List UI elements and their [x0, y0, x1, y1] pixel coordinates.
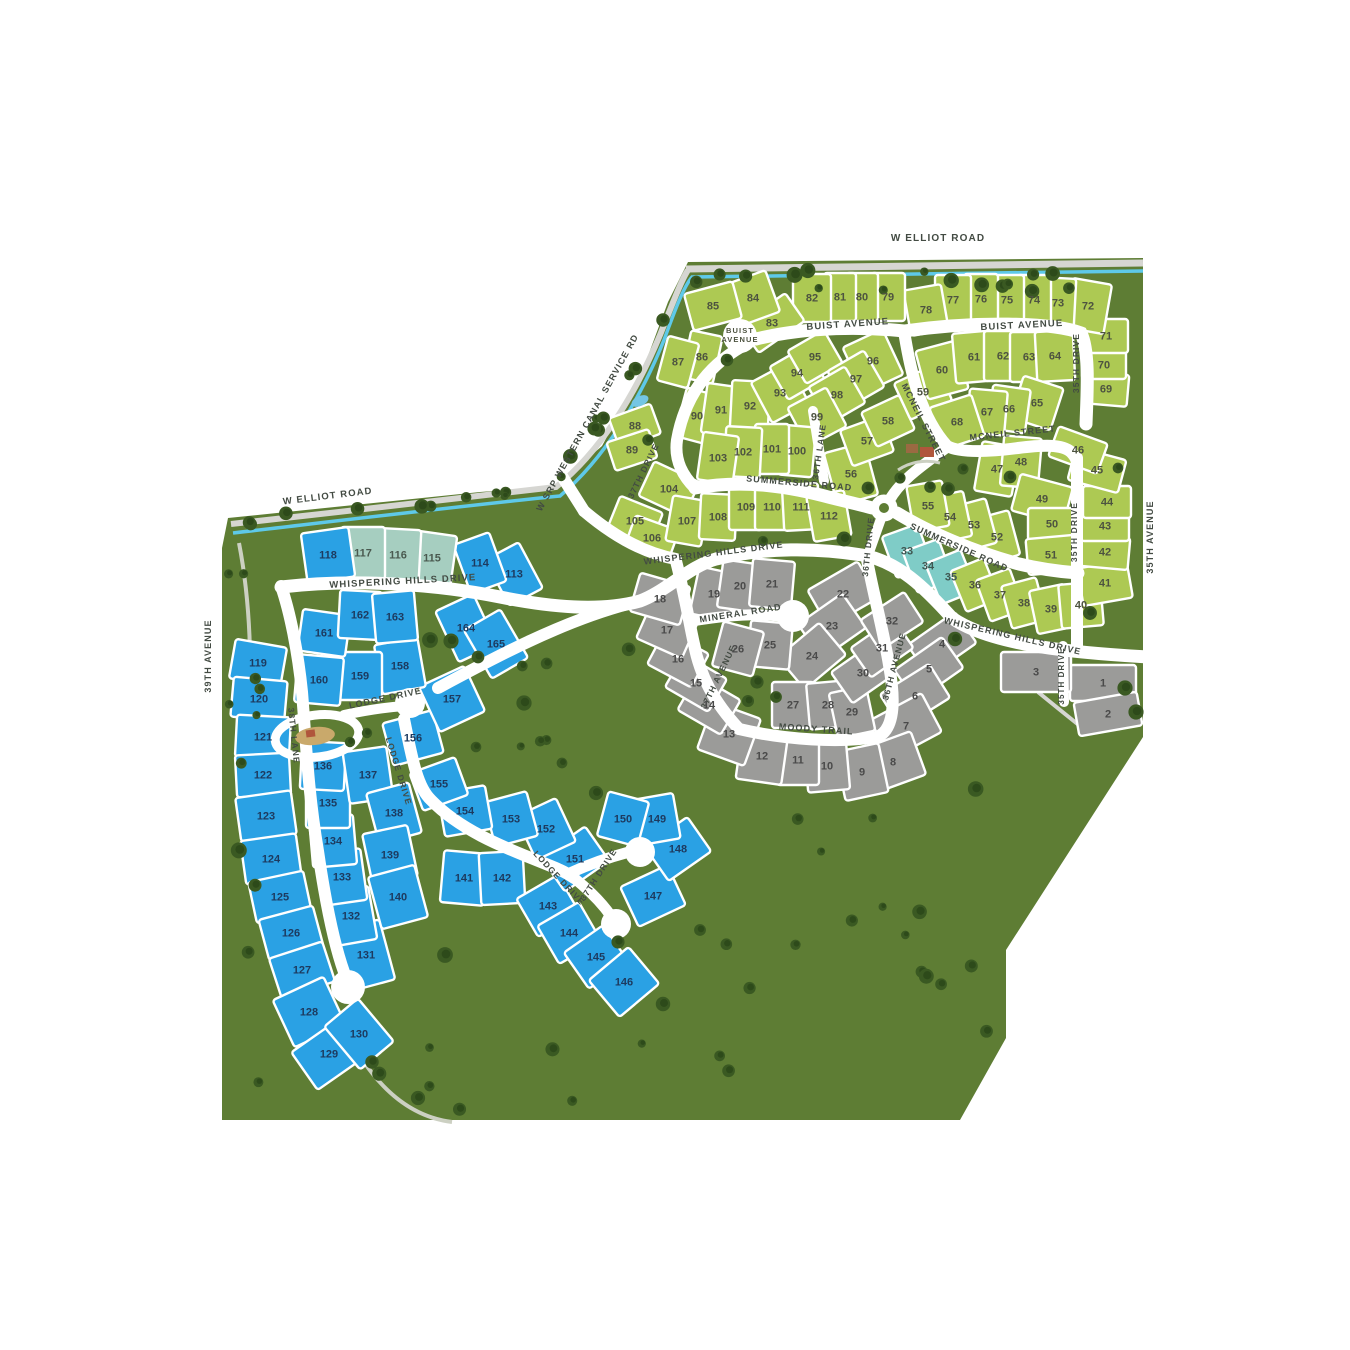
tree-icon — [492, 488, 501, 497]
lot-33-number: 33 — [901, 546, 913, 558]
tree-icon — [846, 914, 858, 926]
tree-icon — [351, 502, 365, 516]
lot-164-number: 164 — [457, 623, 476, 635]
lot-162-number: 162 — [351, 610, 369, 622]
lot-106-number: 106 — [643, 533, 661, 545]
lot-110-number: 110 — [763, 502, 781, 514]
lot-16-number: 16 — [672, 654, 684, 666]
lot-57-number: 57 — [861, 436, 873, 448]
lot-74-number: 74 — [1028, 295, 1041, 307]
lot-11-number: 11 — [792, 755, 804, 767]
lot-36-number: 36 — [969, 580, 981, 592]
tree-icon — [517, 742, 525, 750]
tree-icon — [638, 1039, 646, 1047]
lot-96-number: 96 — [867, 356, 879, 368]
lot-62-number: 62 — [997, 351, 1009, 363]
tree-icon — [879, 903, 887, 911]
lot-4-number: 4 — [939, 639, 946, 651]
lot-148-number: 148 — [669, 844, 687, 856]
lot-134-number: 134 — [324, 836, 343, 848]
lot-79-number: 79 — [882, 292, 894, 304]
tree-icon — [974, 277, 989, 292]
tree-icon — [557, 758, 568, 769]
tree-icon — [414, 499, 429, 514]
lot-37-number: 37 — [994, 590, 1006, 602]
tree-icon — [721, 938, 733, 950]
lot-90-number: 90 — [691, 411, 703, 423]
lot-42-number: 42 — [1099, 547, 1111, 559]
lot-146-number: 146 — [615, 977, 633, 989]
tree-icon — [770, 691, 782, 703]
lot-139-number: 139 — [381, 850, 399, 862]
lot-142-number: 142 — [493, 873, 511, 885]
lot-165-number: 165 — [487, 639, 505, 651]
lot-131-number: 131 — [357, 950, 375, 962]
lot-127-number: 127 — [293, 965, 311, 977]
tree-icon — [800, 263, 815, 278]
lot-70-number: 70 — [1098, 360, 1110, 372]
tree-icon — [1117, 680, 1132, 695]
street-label-35th-avenue: 35TH AVENUE — [1145, 500, 1155, 573]
lot-48-number: 48 — [1015, 457, 1027, 469]
lot-81-number: 81 — [834, 292, 846, 304]
lot-40-number: 40 — [1075, 600, 1087, 612]
tree-icon — [253, 1077, 263, 1087]
tree-icon — [1027, 268, 1039, 280]
lot-45-number: 45 — [1091, 465, 1103, 477]
tree-icon — [589, 786, 603, 800]
lot-91-number: 91 — [715, 405, 727, 417]
tree-icon — [919, 969, 934, 984]
lot-12-number: 12 — [756, 751, 768, 763]
tree-icon — [372, 1067, 386, 1081]
lot-53-number: 53 — [968, 520, 980, 532]
lot-69-number: 69 — [1100, 384, 1112, 396]
lot-150-number: 150 — [614, 814, 632, 826]
lot-41-number: 41 — [1099, 578, 1111, 590]
lot-61-number: 61 — [968, 352, 980, 364]
lot-38-number: 38 — [1018, 598, 1030, 610]
lot-6-number: 6 — [912, 691, 918, 703]
lot-154-number: 154 — [456, 806, 475, 818]
tree-icon — [837, 532, 852, 547]
tree-icon — [787, 267, 803, 283]
tree-icon — [944, 273, 959, 288]
page: W ELLIOT ROADW ELLIOT ROADW SRP WESTERN … — [0, 0, 1350, 1350]
lot-52-number: 52 — [991, 532, 1003, 544]
lot-78-number: 78 — [920, 305, 932, 317]
lot-76-number: 76 — [975, 294, 987, 306]
tree-icon — [567, 1096, 577, 1106]
tree-icon — [739, 269, 752, 282]
tree-icon — [1002, 279, 1013, 290]
tree-icon — [411, 1091, 425, 1105]
tree-icon — [224, 569, 233, 578]
lot-160-number: 160 — [310, 675, 328, 687]
tree-icon — [231, 842, 247, 858]
tree-icon — [541, 658, 553, 670]
lot-155-number: 155 — [430, 779, 448, 791]
lot-116-number: 116 — [389, 550, 407, 562]
lot-73-number: 73 — [1052, 298, 1064, 310]
lot-124-number: 124 — [262, 854, 281, 866]
tree-icon — [249, 879, 262, 892]
street-label-35th-drive: 35TH DRIVE — [1069, 502, 1079, 562]
tree-icon — [517, 661, 528, 672]
lot-149-number: 149 — [648, 814, 666, 826]
cul-de-sac — [331, 970, 365, 1004]
lot-80-number: 80 — [856, 292, 868, 304]
lot-89-number: 89 — [626, 445, 638, 457]
tree-icon — [868, 814, 877, 823]
lot-9-number: 9 — [859, 767, 865, 779]
lot-118-number: 118 — [319, 550, 337, 562]
tree-icon — [611, 935, 624, 948]
lot-83-number: 83 — [766, 318, 778, 330]
tree-icon — [792, 813, 804, 825]
lot-28-number: 28 — [822, 700, 834, 712]
lot-102-number: 102 — [734, 447, 752, 459]
lot-23-number: 23 — [826, 621, 838, 633]
lot-71-number: 71 — [1100, 331, 1112, 343]
tree-icon — [516, 695, 531, 710]
tree-icon — [920, 267, 928, 275]
tree-icon — [243, 516, 256, 529]
tree-icon — [948, 632, 962, 646]
lot-68-number: 68 — [951, 417, 963, 429]
street-label-35th-drive: 35TH DRIVE — [1071, 333, 1081, 393]
lot-44-number: 44 — [1101, 497, 1114, 509]
street-label-35th-drive: 35TH DRIVE — [1057, 647, 1066, 704]
lot-10-number: 10 — [821, 761, 833, 773]
site-map: W ELLIOT ROADW ELLIOT ROADW SRP WESTERN … — [0, 0, 1350, 1350]
lot-88-number: 88 — [629, 421, 641, 433]
lot-34-number: 34 — [922, 561, 935, 573]
tree-icon — [894, 472, 905, 483]
tree-icon — [622, 643, 636, 657]
roundabout-island — [879, 503, 890, 514]
lot-54-number: 54 — [944, 512, 957, 524]
lot-121-number: 121 — [254, 732, 272, 744]
lot-67-number: 67 — [981, 407, 993, 419]
lot-55-number: 55 — [922, 501, 934, 513]
tree-icon — [815, 284, 823, 292]
lot-87-number: 87 — [672, 357, 684, 369]
lot-58-number: 58 — [882, 416, 894, 428]
tree-icon — [535, 736, 546, 747]
lot-99-number: 99 — [811, 412, 823, 424]
lot-105-number: 105 — [626, 516, 644, 528]
tree-icon — [721, 354, 734, 367]
lot-97-number: 97 — [850, 374, 862, 386]
lot-92-number: 92 — [744, 401, 756, 413]
tree-icon — [279, 506, 293, 520]
lot-85-number: 85 — [707, 301, 719, 313]
tree-icon — [597, 411, 610, 424]
lot-29-number: 29 — [846, 707, 858, 719]
tree-icon — [362, 728, 372, 738]
lot-107-number: 107 — [678, 516, 696, 528]
bulb-label-line: AVENUE — [721, 335, 758, 344]
lot-152-number: 152 — [537, 824, 555, 836]
lot-20-number: 20 — [734, 581, 746, 593]
lot-108-number: 108 — [709, 512, 727, 524]
lot-128-number: 128 — [300, 1007, 318, 1019]
lot-17-number: 17 — [661, 625, 673, 637]
lot-82-number: 82 — [806, 293, 818, 305]
cul-de-sac — [601, 909, 631, 939]
tree-icon — [935, 978, 947, 990]
tree-icon — [965, 959, 978, 972]
lot-129-number: 129 — [320, 1049, 338, 1061]
lot-50-number: 50 — [1046, 519, 1058, 531]
lot-141-number: 141 — [455, 873, 473, 885]
lot-66-number: 66 — [1003, 404, 1015, 416]
lot-24-number: 24 — [806, 651, 819, 663]
lot-84-number: 84 — [747, 293, 760, 305]
lot-153-number: 153 — [502, 814, 520, 826]
lot-101-number: 101 — [763, 444, 781, 456]
tree-icon — [941, 482, 955, 496]
tree-icon — [624, 370, 634, 380]
lot-25-number: 25 — [764, 640, 776, 652]
tree-icon — [252, 711, 260, 719]
lot-137-number: 137 — [359, 770, 377, 782]
street-label-buist-avenue-bulb: BUISTAVENUE — [721, 326, 758, 344]
lot-77-number: 77 — [947, 295, 959, 307]
tree-icon — [743, 982, 755, 994]
tree-icon — [472, 651, 485, 664]
lot-65-number: 65 — [1031, 398, 1043, 410]
lot-32-number: 32 — [886, 616, 898, 628]
tree-icon — [817, 847, 825, 855]
tree-icon — [957, 463, 968, 474]
tree-icon — [714, 1050, 725, 1061]
tree-icon — [453, 1103, 466, 1116]
lot-109-number: 109 — [737, 502, 755, 514]
lot-104-number: 104 — [660, 484, 679, 496]
cul-de-sac — [625, 837, 655, 867]
lot-115-number: 115 — [423, 553, 441, 565]
amenity-building — [906, 444, 918, 453]
tree-icon — [968, 781, 984, 797]
lot-51-number: 51 — [1045, 550, 1057, 562]
lot-64-number: 64 — [1049, 351, 1062, 363]
tree-icon — [365, 1055, 378, 1068]
tree-icon — [790, 940, 800, 950]
tree-icon — [1128, 704, 1143, 719]
tree-icon — [901, 931, 910, 940]
lot-147-number: 147 — [644, 891, 662, 903]
tree-icon — [250, 673, 261, 684]
lot-75-number: 75 — [1001, 295, 1013, 307]
lot-132-number: 132 — [342, 911, 360, 923]
lot-19-number: 19 — [708, 589, 720, 601]
lot-122-number: 122 — [254, 770, 272, 782]
tree-icon — [500, 492, 508, 500]
lot-100-number: 100 — [788, 446, 806, 458]
playground-structure — [306, 729, 316, 737]
tree-icon — [1113, 463, 1124, 474]
lot-135-number: 135 — [319, 798, 337, 810]
lot-136-number: 136 — [314, 761, 332, 773]
lot-117-number: 117 — [354, 548, 372, 560]
lot-49-number: 49 — [1036, 494, 1048, 506]
lot-130-number: 130 — [350, 1029, 368, 1041]
tree-icon — [239, 569, 248, 578]
tree-icon — [742, 695, 754, 707]
lot-15-number: 15 — [690, 678, 702, 690]
tree-icon — [694, 924, 706, 936]
lot-43-number: 43 — [1099, 521, 1111, 533]
lot-22-number: 22 — [837, 589, 849, 601]
lot-1-number: 1 — [1100, 678, 1106, 690]
tree-icon — [425, 1043, 434, 1052]
tree-icon — [424, 1081, 434, 1091]
street-label-w-elliot-road: W ELLIOT ROAD — [891, 233, 985, 244]
lot-27-number: 27 — [787, 700, 799, 712]
lot-8-number: 8 — [890, 757, 896, 769]
lot-133-number: 133 — [333, 872, 351, 884]
lot-125-number: 125 — [271, 892, 289, 904]
tree-icon — [750, 675, 763, 688]
lot-157-number: 157 — [443, 694, 461, 706]
tree-icon — [345, 737, 355, 747]
tree-icon — [1045, 266, 1060, 281]
lot-72-number: 72 — [1082, 301, 1094, 313]
lot-56-number: 56 — [845, 469, 857, 481]
lot-13-number: 13 — [723, 729, 735, 741]
lot-5-number: 5 — [926, 664, 932, 676]
tree-icon — [656, 313, 669, 326]
lot-21-number: 21 — [766, 579, 778, 591]
lot-156-number: 156 — [404, 733, 422, 745]
tree-icon — [461, 492, 471, 502]
tree-icon — [437, 947, 453, 963]
lot-120-number: 120 — [250, 694, 268, 706]
cul-de-sac — [777, 600, 809, 632]
tree-icon — [242, 946, 255, 959]
tree-icon — [912, 904, 927, 919]
lot-161-number: 161 — [315, 628, 333, 640]
tree-icon — [443, 633, 458, 648]
lot-2-number: 2 — [1105, 709, 1111, 721]
lot-26-number: 26 — [732, 644, 744, 656]
lot-95-number: 95 — [809, 352, 821, 364]
lot-111-number: 111 — [792, 502, 809, 514]
lot-59-number: 59 — [917, 387, 929, 399]
street-label-39th-avenue: 39TH AVENUE — [203, 619, 213, 692]
lot-86-number: 86 — [696, 352, 708, 364]
lot-93-number: 93 — [774, 388, 786, 400]
tree-icon — [1063, 282, 1075, 294]
tree-icon — [1004, 471, 1017, 484]
lot-98-number: 98 — [831, 390, 843, 402]
lot-103-number: 103 — [709, 453, 727, 465]
lot-159-number: 159 — [351, 671, 369, 683]
lot-14-number: 14 — [703, 700, 716, 712]
lot-151-number: 151 — [566, 854, 584, 866]
tree-icon — [422, 632, 438, 648]
lot-114-number: 114 — [471, 558, 490, 570]
lot-94-number: 94 — [791, 368, 804, 380]
lot-35-number: 35 — [945, 572, 957, 584]
lot-145-number: 145 — [587, 952, 605, 964]
lot-158-number: 158 — [391, 661, 409, 673]
lot-113-number: 113 — [505, 569, 523, 581]
tree-icon — [545, 1042, 559, 1056]
lot-30-number: 30 — [857, 668, 869, 680]
lot-112-number: 112 — [820, 511, 838, 523]
tree-icon — [714, 268, 726, 280]
lot-7-number: 7 — [903, 721, 909, 733]
tree-icon — [690, 276, 702, 288]
tree-icon — [225, 700, 234, 709]
tree-icon — [656, 997, 670, 1011]
lot-126-number: 126 — [282, 928, 300, 940]
tree-icon — [980, 1025, 993, 1038]
tree-icon — [236, 758, 247, 769]
tree-icon — [722, 1064, 735, 1077]
lot-46-number: 46 — [1072, 445, 1084, 457]
lot-138-number: 138 — [385, 808, 403, 820]
lot-143-number: 143 — [539, 901, 557, 913]
lot-123-number: 123 — [257, 811, 275, 823]
lot-18-number: 18 — [654, 594, 666, 606]
lot-63-number: 63 — [1023, 352, 1035, 364]
lot-140-number: 140 — [389, 892, 407, 904]
bulb-label-line: BUIST — [726, 326, 754, 335]
lot-31-number: 31 — [876, 643, 888, 655]
lot-60-number: 60 — [936, 365, 948, 377]
tree-icon — [862, 482, 875, 495]
lot-163-number: 163 — [386, 612, 404, 624]
tree-icon — [471, 742, 482, 753]
lot-47-number: 47 — [991, 464, 1003, 476]
lot-144-number: 144 — [560, 928, 579, 940]
tree-icon — [924, 481, 936, 493]
lot-119-number: 119 — [249, 658, 267, 670]
lot-3-number: 3 — [1033, 667, 1039, 679]
lot-39-number: 39 — [1045, 604, 1057, 616]
